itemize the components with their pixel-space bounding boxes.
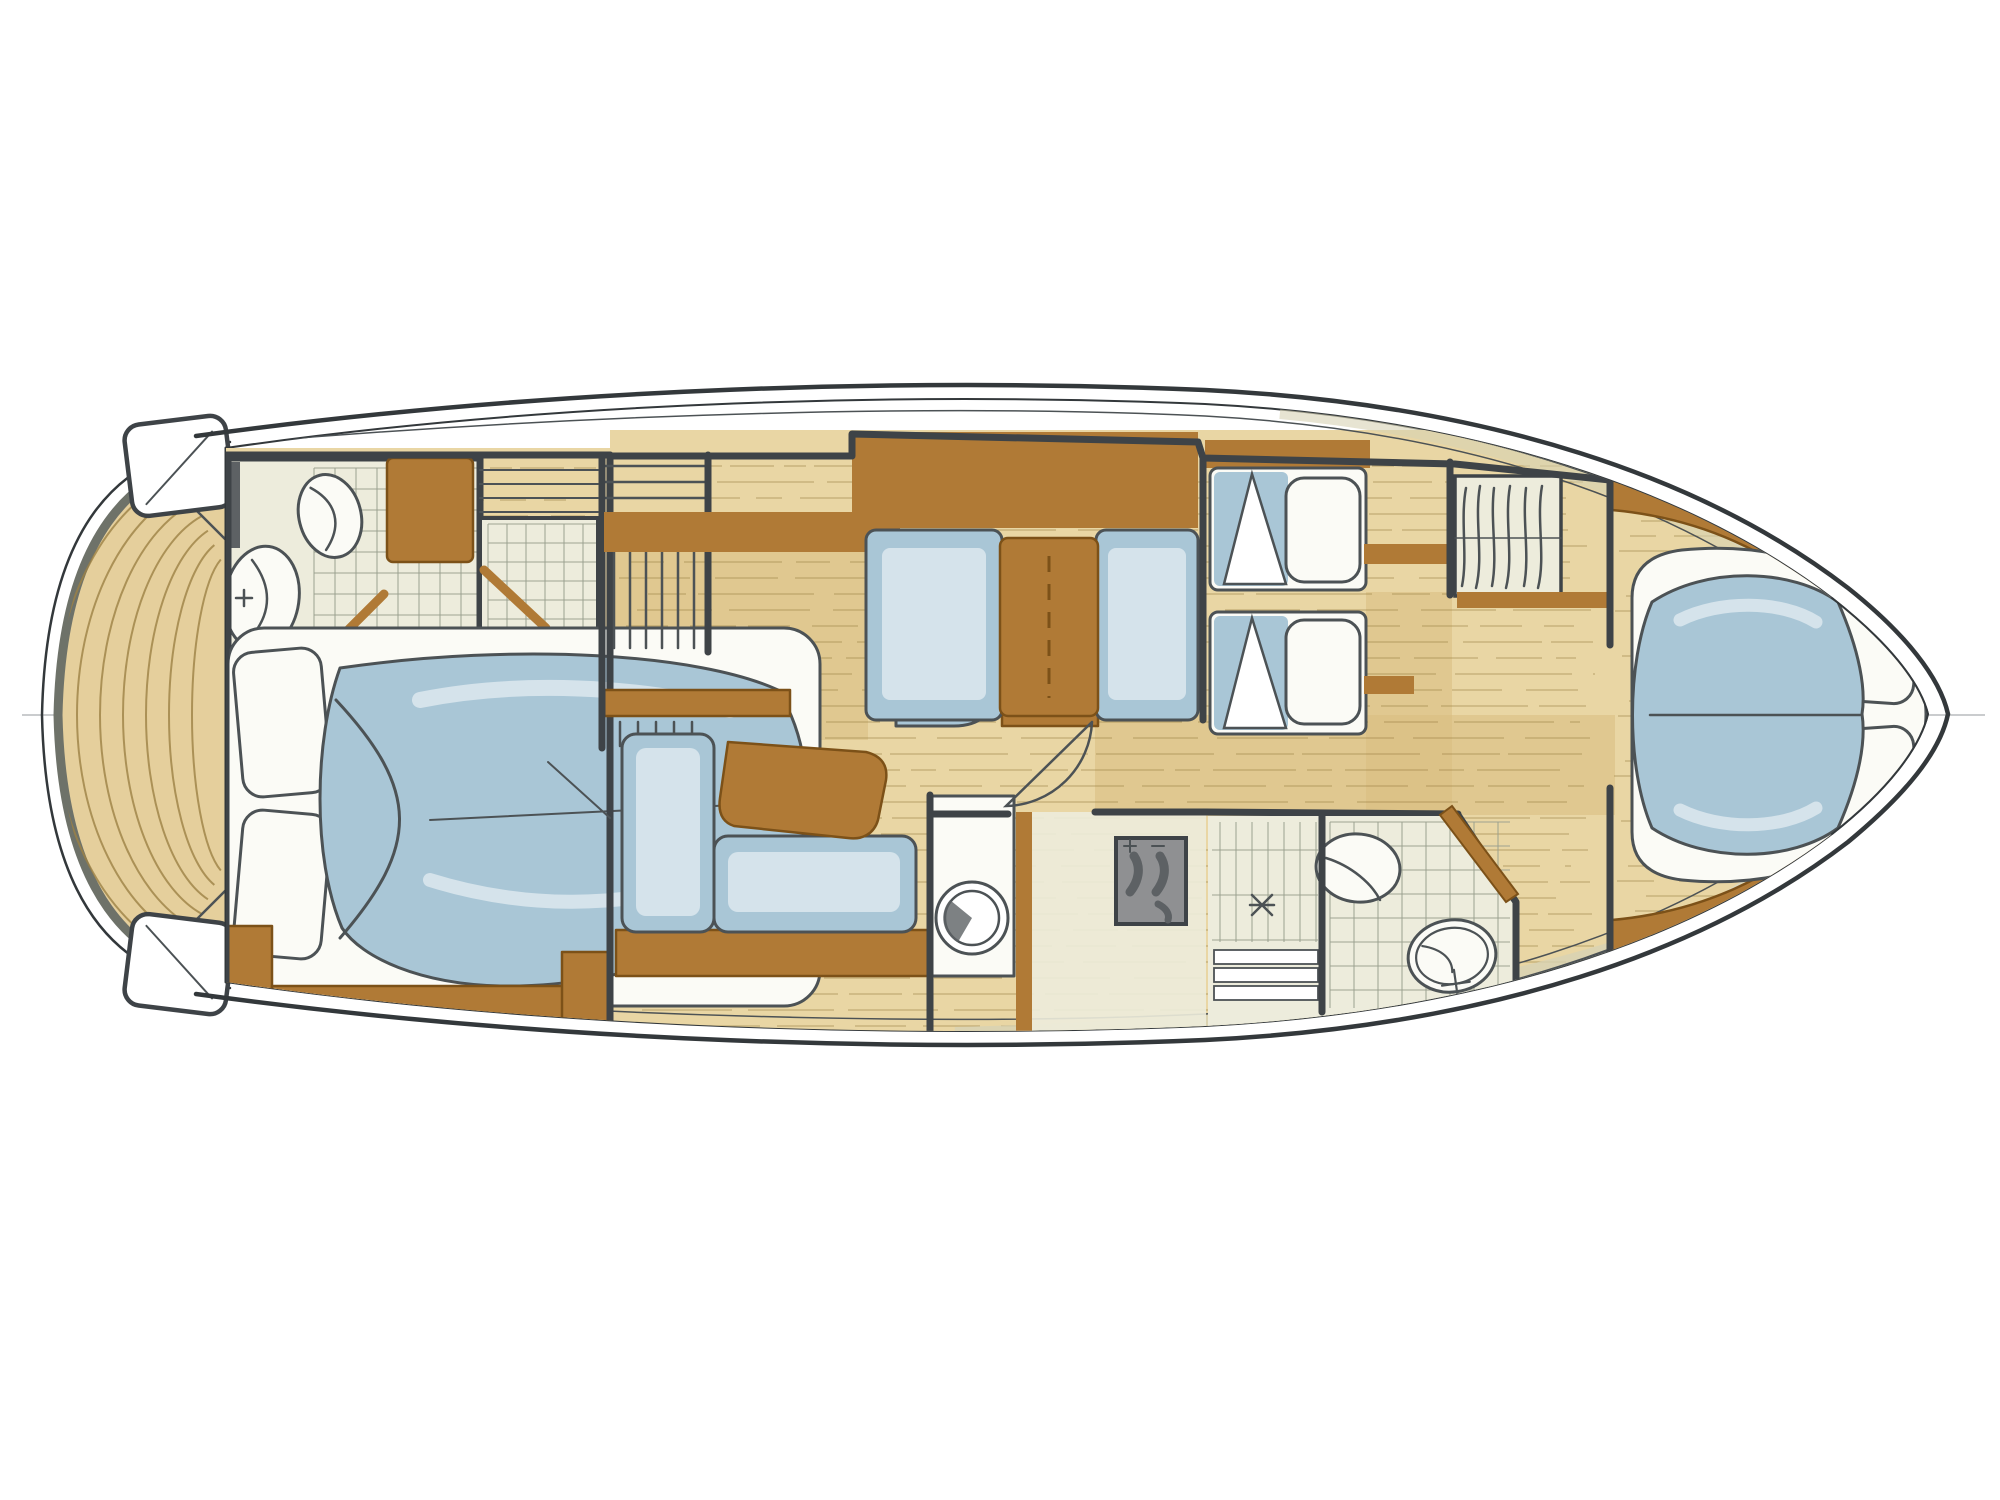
bench-cushion [882, 548, 986, 700]
shower-grating [1214, 950, 1318, 1000]
seat-cushion [728, 852, 900, 912]
yacht-floorplan-drawing [0, 0, 2000, 1500]
floorplan-page [0, 0, 2000, 1500]
coffee-table [720, 742, 887, 838]
boarding-step-starboard [123, 912, 235, 1016]
bedside-shelf [1364, 676, 1414, 694]
guest-cabin-walkway [1366, 592, 1452, 812]
boarding-step-port [123, 414, 235, 518]
stove [1116, 838, 1186, 924]
galley-sink [936, 882, 1008, 954]
galley-trim [1016, 812, 1032, 1058]
single-berth-lower [1210, 612, 1366, 734]
sofa-base-cabinet [616, 930, 936, 976]
wardrobe [387, 458, 473, 562]
aft-shower [480, 518, 598, 634]
pillow [232, 646, 332, 798]
locker-base-shelf [1457, 592, 1607, 608]
single-berth-upper [1210, 468, 1366, 590]
sideboard-forward [852, 432, 1198, 528]
bench-cushion [1108, 548, 1186, 700]
swim-platform [42, 414, 235, 1016]
bedside-shelf [1364, 544, 1452, 564]
pillow [1286, 620, 1360, 724]
pillow [1286, 478, 1360, 582]
stair-rail-edge [600, 690, 790, 716]
v-berth [1632, 548, 1926, 881]
seat-cushion [636, 748, 700, 916]
